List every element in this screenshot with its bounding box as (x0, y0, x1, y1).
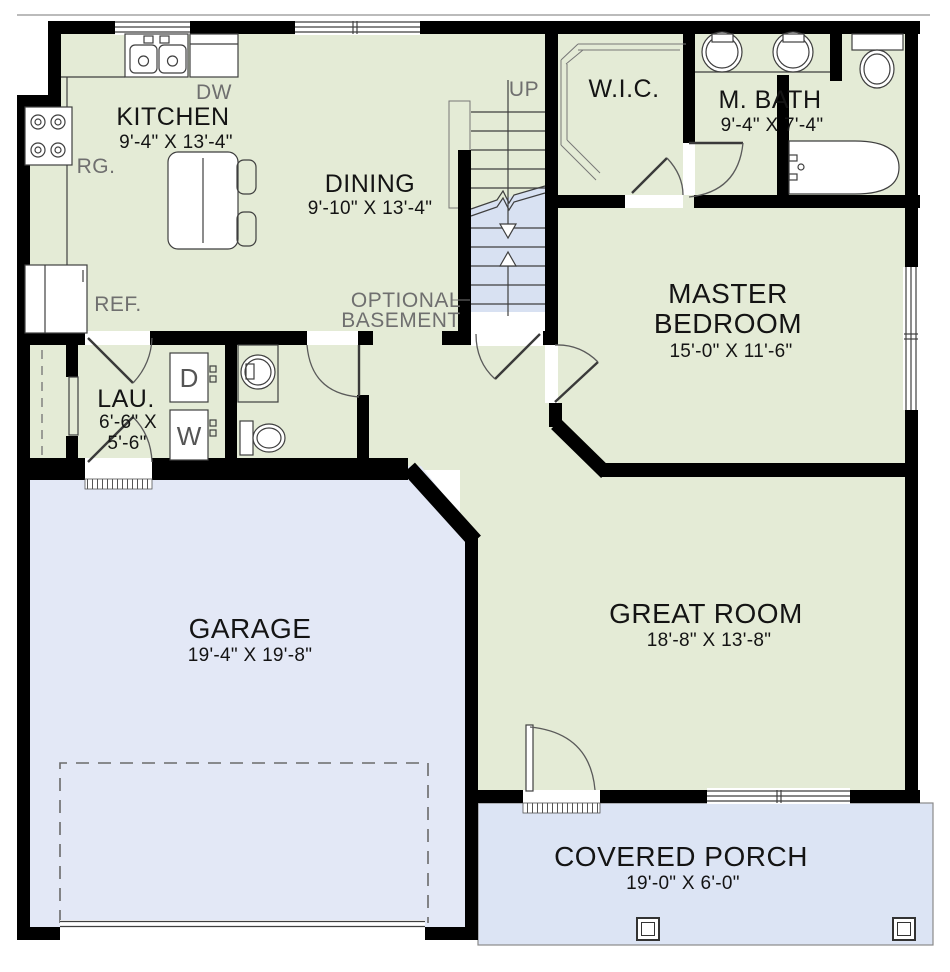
floor-plan-canvas: KITCHEN 9'-4" X 13'-4" DINING 9'-10" X 1… (0, 0, 950, 972)
floor-plan: KITCHEN 9'-4" X 13'-4" DINING 9'-10" X 1… (0, 0, 950, 972)
range-label: RG. (77, 155, 116, 178)
vanity-sink (702, 32, 742, 72)
laundry-label: LAU. (97, 385, 155, 413)
bathtub (789, 141, 899, 194)
kitchen-sink (125, 34, 188, 77)
great-room-label: GREAT ROOM (609, 598, 803, 629)
laundry-dims-2: 5'-6" (107, 433, 146, 454)
dishwasher (190, 34, 238, 77)
wic-label: W.I.C. (588, 75, 659, 103)
powder-toilet (240, 421, 285, 455)
front-stoop (523, 803, 600, 813)
dining-dims: 9'-10" X 13'-4" (308, 198, 433, 219)
porch-post (893, 918, 915, 940)
great-room-dims: 18'-8" X 13'-8" (647, 630, 772, 651)
dining-window (295, 19, 420, 35)
vanity-sink (773, 32, 813, 72)
covered-porch-label: COVERED PORCH (554, 841, 808, 872)
master-bedroom-label-1: MASTER (668, 278, 788, 309)
garage-step (85, 479, 152, 489)
dishwasher-label: DW (196, 81, 232, 104)
up-label: UP (509, 78, 539, 101)
kitchen-label: KITCHEN (116, 103, 229, 131)
range (25, 107, 72, 165)
kitchen-island (168, 152, 238, 249)
great-room-window (707, 788, 850, 804)
dining-label: DINING (325, 170, 416, 198)
master-bath-label: M. BATH (718, 86, 821, 114)
master-bedroom-window (903, 267, 919, 410)
laundry-dims-1: 6'-6" X (99, 412, 157, 433)
dryer-label: D (180, 363, 199, 393)
master-bedroom-label-2: BEDROOM (654, 308, 802, 339)
garage-label: GARAGE (189, 613, 312, 644)
garage-door-opening (60, 920, 425, 940)
porch-post (637, 918, 659, 940)
master-bath-dims: 9'-4" X 7'-4" (721, 115, 824, 136)
washer-label: W (177, 421, 202, 451)
kitchen-window (115, 19, 190, 35)
kitchen-dims: 9'-4" X 13'-4" (119, 132, 233, 153)
master-bedroom-dims: 15'-0" X 11'-6" (669, 341, 792, 362)
refrigerator-label: REF. (94, 293, 142, 316)
refrigerator (25, 265, 87, 333)
optional-basement-label-2: BASEMENT (341, 309, 461, 332)
garage-floor (30, 466, 478, 927)
garage-dims: 19'-4" X 19'-8" (188, 645, 313, 666)
covered-porch-dims: 19'-0" X 6'-0" (626, 873, 740, 894)
